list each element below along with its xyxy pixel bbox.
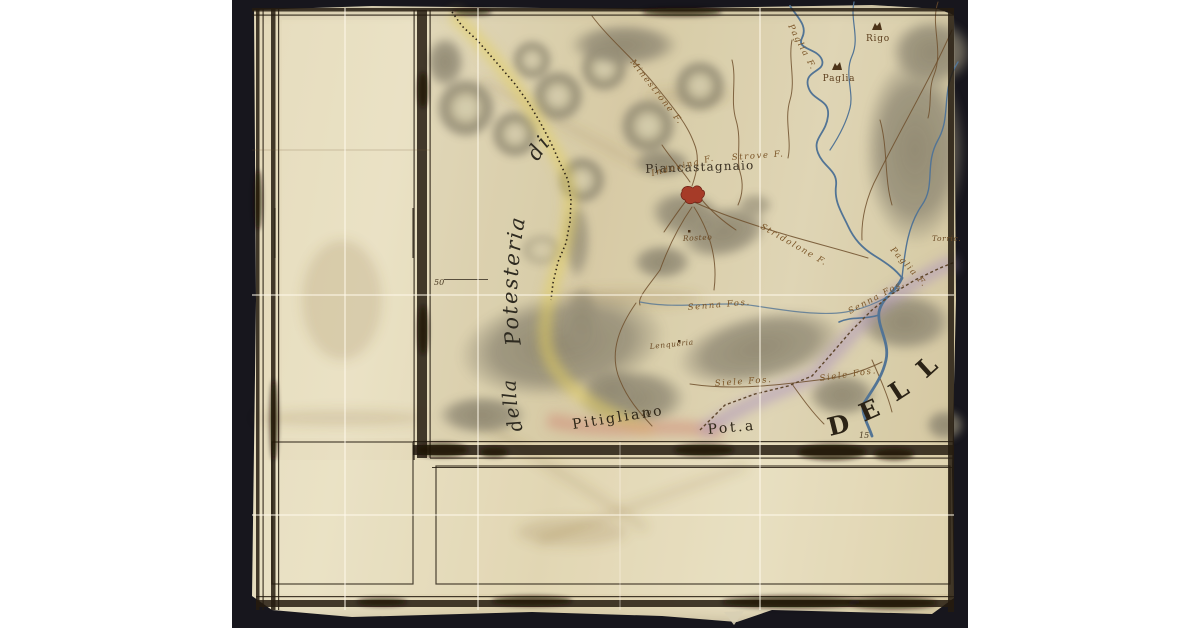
label-paglia-town: Paglia (823, 74, 856, 84)
label-rigo: Rigo (866, 34, 890, 44)
map-artwork: Piancastagnaio Rigo Paglia Torric. Pagli… (232, 0, 968, 628)
rosteo-mark (688, 230, 691, 233)
margin-number-15: 15 (859, 431, 869, 440)
scan-canvas: Piancastagnaio Rigo Paglia Torric. Pagli… (0, 0, 1200, 628)
map-photo: Piancastagnaio Rigo Paglia Torric. Pagli… (232, 0, 968, 628)
label-torre: Torric. (932, 234, 961, 243)
label-rosteo: Rosteo (682, 232, 713, 243)
torn-edge-chip (724, 611, 744, 625)
margin-number-50: 50 (434, 278, 444, 287)
margin-number-10: 10 (641, 409, 651, 418)
